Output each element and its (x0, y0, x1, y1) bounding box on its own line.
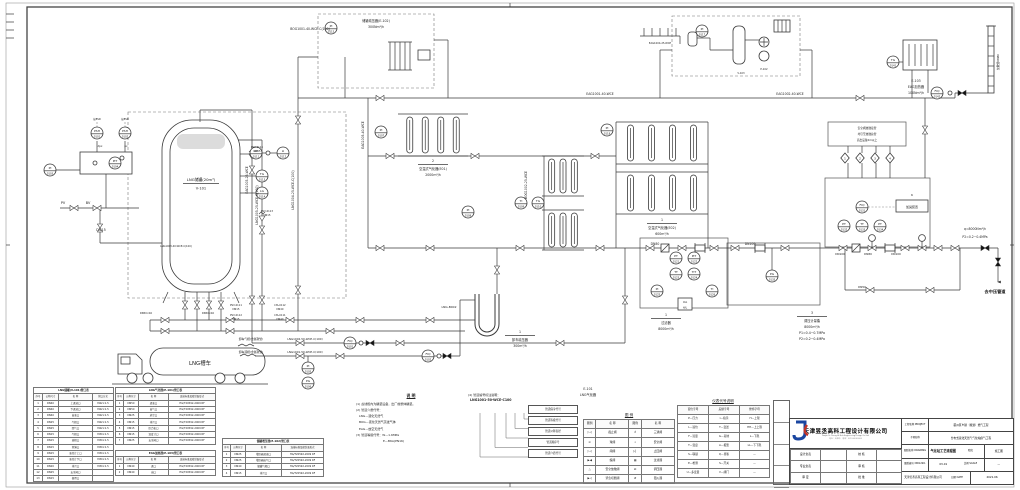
gate-valve-icon (426, 317, 434, 322)
list-item: 管道公称直径 (528, 427, 578, 436)
gate-valve-icon (396, 340, 404, 345)
valve-icon (218, 301, 223, 309)
legend-section: 图 例 图例名 称图例名 称▷◁截止阀♁三通阀⊙球阀⌖安全阀▷◁闸阀▷▏止回阀▶… (583, 413, 675, 484)
svg-text:0122: 0122 (691, 259, 698, 263)
svg-text:E-101: E-101 (583, 387, 592, 391)
svg-text:PI: PI (606, 126, 609, 130)
svg-text:0131: 0131 (859, 208, 866, 212)
field-dwgno-value: 03-01 (929, 459, 958, 471)
field-subproject-value: 分布式液化天然气气化站供气工程 (929, 432, 1013, 444)
pipe-label: EAG1001-40-WCE (586, 92, 614, 96)
equipment-caption: 3调压计量撬8000m³/hP1=0.4~0.7MPaP2=0.2~0.4MPa (797, 311, 827, 341)
svg-text:2: 2 (432, 159, 434, 163)
svg-text:0114: 0114 (259, 194, 266, 198)
valve-icon (295, 286, 300, 294)
valve-icon (622, 296, 627, 304)
gate-valve-icon (426, 245, 434, 250)
vaporizer-bank (616, 122, 708, 164)
gate-valve-icon (596, 245, 604, 250)
pipe-label: EAG1003-25-WCE (245, 166, 249, 194)
instrument-bubble: TI0126 (706, 285, 718, 297)
tank-liquid-band (177, 134, 225, 149)
bog-buffer-vessel (733, 26, 745, 64)
pipe-label: BOG1001-40-WCE-C(100) (290, 27, 330, 31)
instrument-bubble: PT0134 (874, 220, 886, 232)
svg-text:0109: 0109 (518, 204, 525, 208)
company-logo (792, 419, 812, 443)
gate-valve-icon (226, 328, 234, 333)
pipe-label: V-103 (737, 71, 745, 75)
gate-valve-icon (376, 95, 384, 100)
svg-text:0102: 0102 (425, 357, 432, 361)
svg-text:PIT: PIT (113, 159, 118, 163)
shutoff-valve-icon (366, 340, 374, 345)
field-company2: 天津昱丞高科工程设计有限公司 (902, 472, 944, 484)
equipment-caption: 1空温式气化器(E02)600m³/h (647, 218, 677, 236)
flow-meter-icon (695, 243, 705, 253)
gate-valve-icon (556, 340, 564, 345)
svg-text:PI: PI (307, 364, 310, 368)
list-item: 管道等级代号 (528, 416, 578, 425)
signature-strip (773, 400, 790, 485)
svg-text:0102: 0102 (122, 134, 129, 138)
field-stage-value: 施工图 (985, 445, 1014, 457)
data-table: LNG气化器(E-101)管口表序号公称尺寸名 称连接标准及密封面形式1DN50… (115, 387, 216, 445)
svg-text:0112: 0112 (280, 154, 287, 158)
gate-valve-icon (296, 340, 304, 345)
pipe-code-example: LNG1001-50-WCE-C100 (470, 398, 586, 402)
gate-valve-icon (326, 328, 334, 333)
instrument-bubble: PI0103 (44, 164, 56, 176)
bog-small-vessel (688, 32, 697, 46)
odorizer-label: 加臭装置 (906, 204, 918, 209)
dpx-label: dpx (98, 144, 103, 148)
vaporizer-bank (542, 210, 584, 250)
pressurizer-nozzle-table: 储罐增压器(E-102)管口表序号公称尺寸名 称连接标准及密封面形式1DN25增… (222, 438, 323, 477)
pipe-label: DN40 (277, 307, 284, 311)
bog-pump (759, 51, 769, 61)
list-item: E—B6A(PN16) (356, 438, 466, 444)
svg-text:0132: 0132 (841, 227, 848, 231)
instrument-bubble: PIT0122 (688, 252, 700, 264)
gate-valve-icon (781, 245, 789, 250)
filter-icon (661, 244, 669, 252)
valve-icon (249, 296, 254, 304)
pipe-label: LTA-0111 (274, 313, 286, 317)
notes-section: 说 明 (1) 虚线框内为橇装设备，出厂前整体橇装。(2) 管道介质代号： LN… (356, 393, 466, 444)
pipe-label: DN15 (233, 317, 240, 321)
vent-note-line: 均引至放散总管 (858, 132, 877, 136)
svg-text:FIQ: FIQ (426, 352, 432, 356)
data-table: 首位字母后继字母修饰字母P—压力I—指示H—上限L—液位T—变送HH—上上限F—… (677, 405, 770, 478)
svg-text:0118: 0118 (604, 131, 611, 135)
shutoff-valve-icon (981, 245, 989, 250)
vent-note: 安全阀放散接管 均引至放散总管 高出设备2m以上 (857, 126, 878, 142)
gate-valve-icon (286, 317, 294, 322)
gate-valve-icon (856, 95, 864, 100)
svg-text:0142: 0142 (934, 94, 941, 98)
instrument-bubble: FIQ0131 (856, 201, 868, 213)
svg-text:0103: 0103 (47, 171, 54, 175)
valve-icon (259, 226, 264, 234)
field-drawing-value: 气化站工艺流程图 (929, 445, 958, 457)
vent-note-line: 安全阀放散接管 (858, 126, 877, 130)
field-dwgno-label: 图纸编号 DWG NO. (902, 459, 929, 471)
svg-text:TIT: TIT (691, 270, 697, 274)
pipe-label: LNG-B002 (442, 305, 457, 309)
instrument-code-section: 仪表代号说明 首位字母后继字母修饰字母P—压力I—指示H—上限L—液位T—变送H… (677, 399, 769, 478)
tank-nozzle-table: LNG储罐(V-101)管口表序号公称尺寸名 称管口方式1DN40上进液口M42… (33, 387, 114, 482)
instrument-bubble: FIQ0101 (344, 337, 356, 349)
svg-text:0101: 0101 (347, 344, 354, 348)
vaporizer-bank (542, 156, 584, 196)
pipe-label: DN50×40 (202, 311, 215, 315)
equipment-caption: 2空温式气化器(E01)2000m³/h (418, 159, 448, 177)
svg-text:0110: 0110 (535, 204, 542, 208)
pipe-label: DN40 (277, 317, 284, 321)
pipe-label: EAG1002-40-WCE (776, 92, 804, 96)
svg-text:0135: 0135 (769, 277, 776, 281)
vent-stack (986, 26, 996, 93)
instrument-bubble: FIQ0142 (931, 87, 943, 99)
svg-text:PI: PI (49, 166, 52, 170)
field-date-value: 2021.06 (971, 472, 1013, 484)
instrument-bubble: PSH0101 (91, 127, 103, 139)
pipe-label: DN80 (864, 252, 872, 256)
svg-text:PSH: PSH (94, 129, 100, 133)
instrument-code-table: 首位字母后继字母修饰字母P—压力I—指示H—上限L—液位T—变送HH—上上限F—… (677, 405, 769, 478)
esd-note: 接ESD (93, 117, 101, 121)
instrument-bubble: TT0123 (670, 268, 682, 280)
vaporizer-bank (398, 114, 468, 156)
field-stage-label: 阶段 (958, 445, 985, 457)
svg-text:TT: TT (673, 270, 678, 274)
svg-text:P2=0.2~0.4MPa: P2=0.2~0.4MPa (799, 337, 825, 341)
svg-text:1: 1 (665, 313, 667, 317)
instrument-bubble: PI0108 (462, 206, 474, 218)
valve-icon (249, 166, 254, 174)
instrument-bubble: PSH0102 (119, 127, 131, 139)
svg-text:0126: 0126 (709, 292, 716, 296)
pipe-label: LNG1001-50-WCE-C(100) (287, 350, 322, 354)
gate-valve-icon (926, 287, 934, 292)
instrument-bubble: PI0118 (601, 124, 613, 136)
notes-title: 说 明 (356, 393, 466, 399)
svg-text:PSH: PSH (122, 129, 128, 133)
gate-valve-icon (471, 153, 479, 158)
pipe-label: LTA-0112 (274, 303, 286, 307)
vaporizer-bank (616, 172, 708, 214)
tank-tag: V-101 (196, 187, 206, 191)
svg-text:PI: PI (380, 128, 383, 132)
field-date-label: 日期 DATE (944, 472, 971, 484)
valve-icon (295, 116, 300, 124)
unloading-hose (238, 344, 254, 346)
svg-text:储罐增压器(E-102): 储罐增压器(E-102) (362, 18, 390, 23)
instrument-bubble: PI0105 (302, 362, 314, 374)
svg-text:0125: 0125 (654, 292, 661, 296)
pipe-label: 放散管DN80 (996, 54, 1000, 70)
pipe-label: DN100 (745, 242, 756, 246)
data-table: EAG加热器(E-103)管口表序号公称尺寸名 称连接标准及密封面形式1DN40… (115, 450, 216, 476)
pipe-label: PSV-0113 (261, 209, 273, 213)
instrument-bubble: PT0132 (838, 220, 850, 232)
pipe-label: PSV-0112 (230, 313, 242, 317)
tank-instrument-manifold: dpx px 接ESD 接ESD (80, 117, 132, 174)
title-block: 天津昱丞高科工程设计有限公司 Tianjin Yu Cheng Hi-Tech … (789, 418, 1014, 485)
gate-valve-icon (386, 153, 394, 158)
equipment-caption: E-103EAG加热器100Nm³/h (908, 79, 925, 95)
legend-table: 图例名 称图例名 称▷◁截止阀♁三通阀⊙球阀⌖安全阀▷◁闸阀▷▏止回阀▶◀蝶阀▦… (583, 419, 675, 484)
pipe-label: 卸车气相(金属软管) (239, 337, 264, 341)
gate-valve-icon (336, 353, 344, 358)
svg-text:300m³/h: 300m³/h (513, 344, 527, 348)
gate-valve-icon (516, 245, 524, 250)
svg-text:1: 1 (519, 330, 521, 334)
signature-table: 设计负责校 核专业负责审 核审 定批 准 (790, 449, 901, 484)
svg-text:0141: 0141 (890, 63, 897, 67)
svg-text:FIQ: FIQ (860, 203, 866, 207)
svg-text:0101: 0101 (94, 134, 101, 138)
small-fitting-icon (948, 91, 952, 95)
svg-text:2000m³/h: 2000m³/h (425, 173, 441, 177)
gate-valve-icon (376, 245, 384, 250)
list-item: 管道保冷代号 (528, 405, 578, 414)
valve-icon (494, 266, 499, 274)
data-table: 图例名 称图例名 称▷◁截止阀♁三通阀⊙球阀⌖安全阀▷◁闸阀▷▏止回阀▶◀蝶阀▦… (583, 419, 675, 484)
tank-pressurizer-coil (388, 42, 430, 70)
gate-valve-icon (839, 245, 847, 250)
pipe-label: q=8000Nm³/h (964, 227, 986, 231)
svg-text:PT: PT (878, 222, 882, 226)
svg-text:PI: PI (330, 24, 333, 28)
vent-note-line: 高出设备2m以上 (857, 138, 878, 142)
shutoff-valve-icon (958, 90, 966, 95)
pipe-label: P-102 (760, 67, 768, 71)
pipe-label: LNG1004-25-WCE-C(100) (291, 170, 295, 209)
svg-text:300Nm³/h: 300Nm³/h (368, 25, 384, 29)
field-subproject-label: 子项名称 (902, 432, 929, 444)
small-fitting-icon (266, 151, 270, 155)
instrument-bubble: PG0135 (766, 270, 778, 282)
svg-text:空温式气化器(E01): 空温式气化器(E01) (419, 166, 447, 171)
instrument-bubble: TT0133 (856, 220, 868, 232)
eag-heater-nozzle-table: EAG加热器(E-103)管口表序号公称尺寸名 称连接标准及密封面形式1DN40… (115, 450, 215, 476)
svg-text:TI: TI (519, 199, 523, 203)
svg-text:600m³/h: 600m³/h (655, 232, 669, 236)
equipment-caption: 1过滤器8000m³/h (651, 313, 681, 331)
svg-text:1: 1 (661, 218, 663, 222)
gate-valve-icon (678, 245, 686, 250)
svg-text:TI: TI (710, 287, 714, 291)
instrument-bubble: PI0107 (375, 126, 387, 138)
svg-text:0107: 0107 (378, 133, 385, 137)
unloading-pressurizer (477, 294, 497, 334)
pipe-label: PV (61, 201, 66, 205)
vaporizer-nozzle-table: LNG气化器(E-101)管口表序号公称尺寸名 称连接标准及密封面形式1DN50… (115, 387, 215, 445)
svg-text:E-103: E-103 (911, 79, 920, 83)
svg-text:LI: LI (282, 149, 285, 153)
relief-diamond: 3 (871, 153, 879, 163)
pipe-label: EAG1005-40-WCE (361, 121, 365, 149)
equipment-boxes (640, 40, 937, 308)
svg-text:PG: PG (306, 379, 311, 383)
svg-text:0121: 0121 (673, 259, 680, 263)
svg-text:0111: 0111 (253, 154, 260, 158)
instrument-bubble: PIT0104 (109, 157, 121, 169)
svg-text:PG: PG (770, 272, 775, 276)
svg-text:过滤器: 过滤器 (661, 320, 671, 325)
svg-text:0124: 0124 (691, 275, 698, 279)
svg-text:0108: 0108 (465, 213, 472, 217)
svg-text:卸车增压器: 卸车增压器 (512, 337, 529, 342)
instrument-bubble: TG0141 (887, 56, 899, 68)
filter-icon (852, 244, 860, 252)
svg-text:TT: TT (859, 222, 864, 226)
esd-note: 接ESD (121, 117, 129, 121)
svg-text:空温式气化器(E02): 空温式气化器(E02) (648, 225, 676, 230)
pipe-label: DN15 (254, 149, 261, 153)
svg-text:H/L: H/L (683, 305, 688, 309)
pipe-label: EAG1004-25-WCE (649, 41, 672, 45)
data-table: LNG储罐(V-101)管口表序号公称尺寸名 称管口方式1DN40上进液口M42… (33, 387, 114, 482)
pipe-label: DN15 (96, 228, 105, 232)
gate-valve-icon (934, 245, 942, 250)
instrument-bubble: PG0106 (302, 377, 314, 389)
gate-valve-icon (646, 245, 654, 250)
pipe-code-callouts: 管道保冷代号管道等级代号管道公称直径管道顺序号管道介质代号 (468, 405, 586, 458)
valve-icon (259, 296, 264, 304)
svg-text:0106: 0106 (305, 384, 312, 388)
field-scale-value: — (985, 459, 1014, 471)
pipe-code-note: (4) 管道编号标注说明： LNG1001-50-WCE-C100 管道保冷代号… (468, 393, 586, 477)
gate-valve-icon (161, 328, 169, 333)
pipe-label: 去中压管道 (985, 288, 1007, 295)
pipe-label: LNG1005-25-WCE-C(100) (255, 185, 259, 224)
svg-text:8000m³/h: 8000m³/h (804, 325, 820, 329)
svg-text:0104: 0104 (112, 164, 119, 168)
svg-text:TG: TG (535, 199, 541, 203)
svg-text:3: 3 (874, 156, 876, 160)
pipe-label: BV (86, 201, 91, 205)
svg-text:0133: 0133 (859, 227, 866, 231)
svg-text:EAG加热器: EAG加热器 (908, 84, 925, 89)
field-drawing-label: 图纸名称 DRAWING (902, 445, 929, 457)
gate-valve-icon (951, 245, 959, 250)
svg-text:LG: LG (260, 189, 265, 193)
svg-text:0123: 0123 (673, 275, 680, 279)
field-scale-label: 比例 SCALE (958, 459, 985, 471)
svg-text:TG: TG (890, 58, 896, 62)
svg-text:PI: PI (701, 27, 704, 31)
company-name-en: Tianjin Yu Cheng Hi-Tech Engineering Des… (796, 435, 896, 437)
svg-text:2: 2 (859, 156, 861, 160)
gate-valve-icon (356, 317, 364, 322)
instrument-bubble: PI0117 (696, 25, 708, 37)
instrument-bubble: PT0121 (670, 252, 682, 264)
gate-valve-icon (296, 353, 304, 358)
instrument-bubble: FIQ0102 (422, 350, 434, 362)
tank-label: LNG储罐(20m³) (187, 177, 216, 182)
instrument-bubble: TIT0124 (688, 268, 700, 280)
regulator-icon (918, 235, 926, 251)
pipe-label: 卸车液相(金属软管) (239, 350, 264, 354)
valve-icon (995, 258, 1000, 266)
gate-valve-icon (866, 287, 874, 292)
gate-valve-icon (731, 245, 739, 250)
notes-list: (1) 虚线框内为橇装设备，出厂前整体橇装。(2) 管道介质代号： LNG—液化… (356, 401, 466, 444)
svg-text:PI: PI (656, 287, 659, 291)
valve-icon (182, 301, 187, 309)
relief-diamond: 2 (856, 153, 864, 163)
shutoff-valve-icon (443, 353, 451, 358)
instrument-code-title: 仪表代号说明 (677, 399, 769, 404)
svg-text:TG: TG (259, 172, 265, 176)
list-item: 管道顺序号 (528, 438, 578, 447)
svg-text:FIQ: FIQ (935, 89, 941, 93)
svg-text:PIT: PIT (692, 254, 697, 258)
pipe-label: LNG1002-50-WCE-C(100) (287, 337, 322, 341)
svg-text:0105: 0105 (305, 369, 312, 373)
instrument-bubble: TG0113 (256, 170, 268, 182)
valve-icon (194, 301, 199, 309)
field-project-label: 工程名称 PROJECT (902, 419, 929, 431)
legend-title: 图 例 (583, 413, 675, 418)
small-fitting-icon (359, 341, 363, 345)
pipe-label: DN15 (264, 213, 271, 217)
lng-storage-tank: LNG储罐(20m³) V-101 (162, 120, 240, 303)
gate-valve-icon (901, 245, 909, 250)
instrument-bubble: LI0112 (277, 147, 289, 159)
svg-text:PT: PT (842, 222, 846, 226)
list-item: 管道介质代号 (528, 449, 578, 458)
equipment-caption: 储罐增压器(E-102)300Nm³/h (362, 18, 390, 29)
pipe-label: DN100 (835, 252, 845, 256)
pipe-label: DN15 (233, 307, 240, 311)
relief-diamond: 1 (841, 153, 849, 163)
svg-text:100Nm³/h: 100Nm³/h (908, 91, 924, 95)
small-fitting-icon (437, 354, 441, 358)
instrument-bubble: PI0125 (651, 285, 663, 297)
svg-text:PI: PI (467, 208, 470, 212)
pipe-label: LNG1003-40-WCE-C(100) (160, 244, 192, 248)
pipe-label: DN50 (858, 285, 866, 289)
flow-meter-icon (755, 243, 765, 253)
drawing-sheet: 安全阀放散接管 均引至放散总管 高出设备2m以上 LNG储罐(20m³) V-1… (0, 0, 1020, 490)
field-project-value: 蓟州区乡镇（规划）燃气工程 (929, 419, 1013, 431)
pipe-label: BOG1002-25-WCE (524, 171, 528, 199)
odorizer-unit: 加臭装置 6 (896, 193, 928, 212)
truck-label: LNG槽车 (189, 359, 212, 367)
gate-valve-icon (710, 245, 718, 250)
valve-icon (922, 126, 927, 134)
gate-valve-icon (93, 205, 101, 210)
gate-valve-icon (161, 317, 169, 322)
pipe-label: PSV-0111 (230, 303, 242, 307)
data-table: 设计负责校 核专业负责审 核审 定批 准 (790, 449, 902, 484)
regulator-icon (868, 235, 876, 251)
instrument-bubble: TG0110 (532, 197, 544, 209)
svg-text:P1=0.4~0.7MPa: P1=0.4~0.7MPa (799, 331, 825, 335)
odorizer-tag: 6 (911, 193, 913, 197)
svg-text:8000m³/h: 8000m³/h (658, 327, 674, 331)
gate-valve-icon (591, 153, 599, 158)
svg-text:调压计量撬: 调压计量撬 (804, 318, 821, 323)
svg-text:3: 3 (811, 311, 813, 315)
pipe-label: DN50×40 (140, 311, 153, 315)
svg-text:1: 1 (844, 156, 846, 160)
equipment-caption: 1卸车增压器300m³/h (505, 330, 535, 348)
